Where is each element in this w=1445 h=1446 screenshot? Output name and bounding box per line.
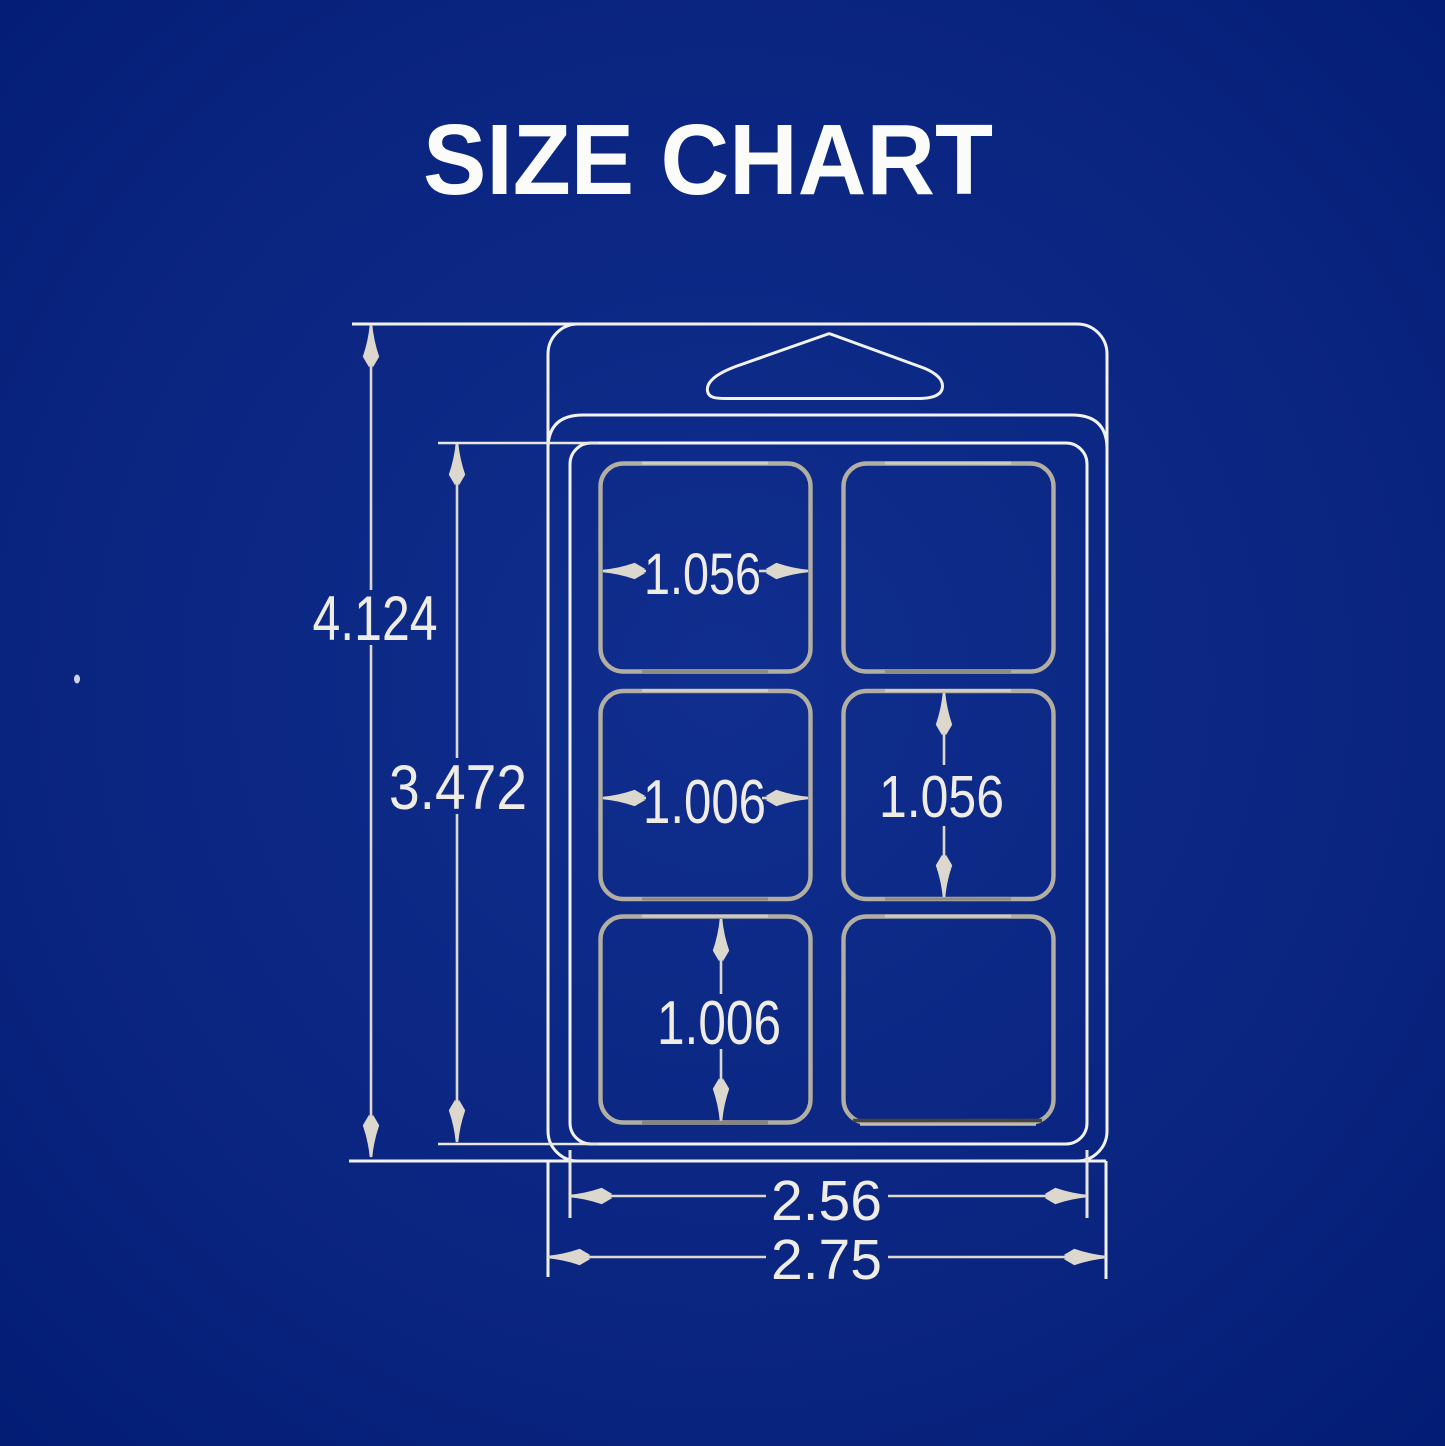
svg-text:3.472: 3.472 (389, 753, 527, 823)
svg-text:2.56: 2.56 (771, 1169, 882, 1233)
svg-text:1.006: 1.006 (643, 768, 766, 837)
svg-text:4.124: 4.124 (313, 584, 438, 654)
svg-text:1.056: 1.056 (644, 542, 761, 607)
svg-text:1.006: 1.006 (657, 989, 781, 1058)
svg-text:SIZE CHART: SIZE CHART (423, 104, 993, 216)
svg-text:1.056: 1.056 (879, 764, 1004, 830)
svg-text:2.75: 2.75 (771, 1228, 882, 1292)
